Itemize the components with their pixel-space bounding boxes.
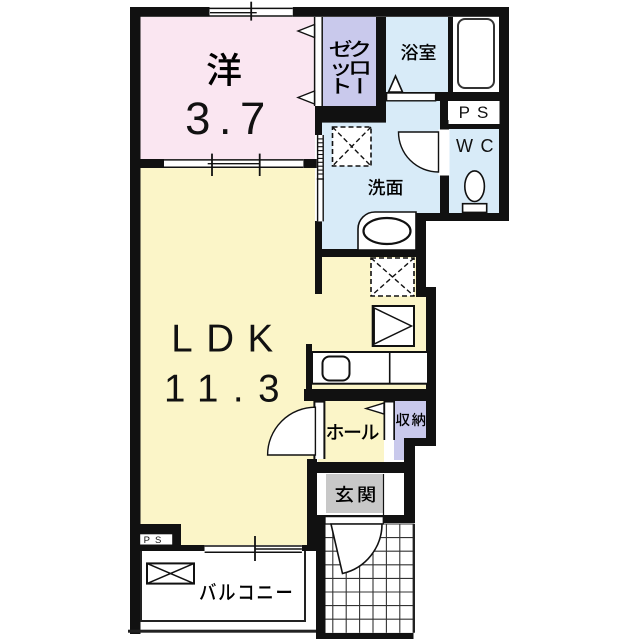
svg-text:WC: WC	[456, 136, 501, 156]
svg-text:PS: PS	[144, 535, 167, 546]
svg-text:11.3: 11.3	[164, 368, 294, 411]
svg-text:LDK: LDK	[171, 318, 286, 361]
svg-text:PS: PS	[459, 103, 496, 122]
svg-text:3.7: 3.7	[185, 93, 274, 144]
